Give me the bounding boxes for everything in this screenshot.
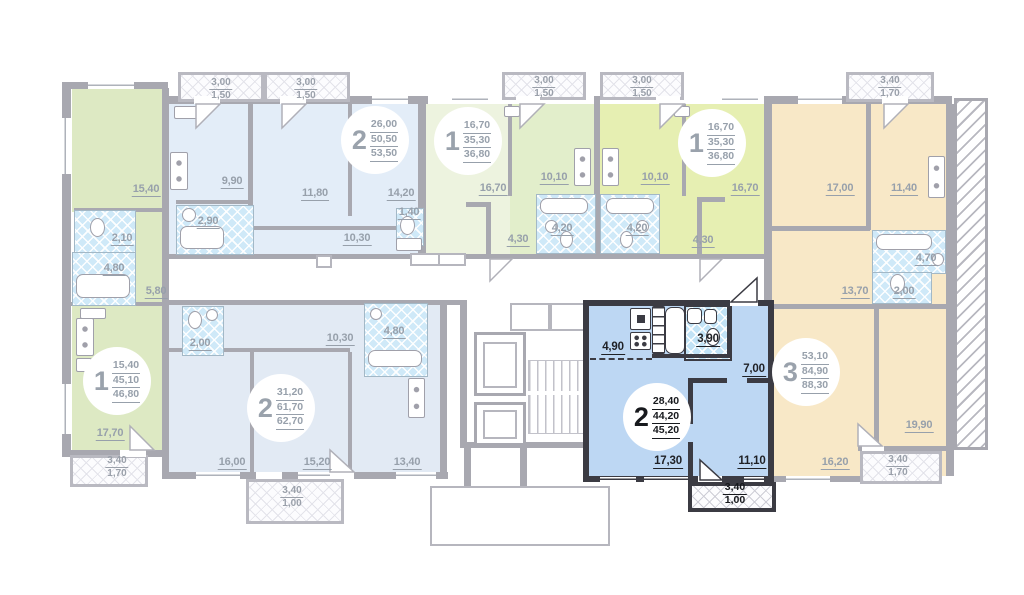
apartment-areas: 31,2061,7062,70 — [276, 386, 304, 430]
door-flaps — [0, 0, 1024, 595]
apartment-badge-middle-left-1-room[interactable]: 1 16,7035,3036,80 — [434, 107, 502, 175]
shape — [858, 424, 882, 446]
area-value: 84,90 — [801, 365, 829, 380]
area-value: 46,80 — [112, 388, 140, 403]
apartment-areas: 28,4044,2045,20 — [652, 395, 680, 439]
shape — [330, 450, 354, 472]
apartment-badge-selected-2-room[interactable]: 2 28,4044,2045,20 — [623, 383, 691, 451]
shape — [520, 104, 544, 128]
area-value: 53,50 — [370, 147, 398, 162]
shape — [196, 104, 220, 128]
area-value: 35,30 — [707, 136, 735, 151]
shape — [700, 259, 722, 281]
area-value: 88,30 — [801, 379, 829, 394]
apartment-badge-top-2-room[interactable]: 2 26,0050,5053,50 — [341, 106, 409, 174]
area-value: 61,70 — [276, 401, 304, 416]
apartment-rooms-count: 2 — [352, 127, 367, 154]
area-value: 36,80 — [707, 150, 735, 165]
shape — [731, 278, 757, 302]
apartment-badge-left-corner-1-room[interactable]: 1 15,4045,1046,80 — [83, 347, 151, 415]
area-value: 45,10 — [112, 374, 140, 389]
area-value: 36,80 — [463, 148, 491, 163]
shape — [884, 104, 908, 128]
area-value: 45,20 — [652, 424, 680, 439]
apartment-areas: 15,4045,1046,80 — [112, 359, 140, 403]
area-value: 16,70 — [707, 121, 735, 136]
apartment-rooms-count: 2 — [258, 395, 273, 422]
area-value: 31,20 — [276, 386, 304, 401]
apartment-rooms-count: 1 — [94, 368, 109, 395]
apartment-areas: 53,1084,9088,30 — [801, 350, 829, 394]
apartment-badge-middle-right-1-room[interactable]: 1 16,7035,3036,80 — [678, 109, 746, 177]
shape — [130, 426, 154, 450]
area-value: 28,40 — [652, 395, 680, 410]
shape — [700, 278, 757, 480]
area-value: 35,30 — [463, 134, 491, 149]
shape — [130, 104, 908, 472]
shape — [700, 460, 722, 480]
shape — [660, 104, 684, 128]
shape — [282, 104, 306, 128]
apartment-rooms-count: 2 — [634, 404, 649, 431]
shape — [490, 259, 512, 281]
apartment-rooms-count: 3 — [783, 359, 798, 386]
apartment-rooms-count: 1 — [445, 128, 460, 155]
floor-plan: 15,402,104,805,8017,70 1 15,4045,1046,80… — [0, 0, 1024, 595]
area-value: 50,50 — [370, 133, 398, 148]
apartment-rooms-count: 1 — [689, 130, 704, 157]
apartment-areas: 16,7035,3036,80 — [707, 121, 735, 165]
area-value: 16,70 — [463, 119, 491, 134]
apartment-badge-bottom-2-room[interactable]: 2 31,2061,7062,70 — [247, 374, 315, 442]
apartment-areas: 16,7035,3036,80 — [463, 119, 491, 163]
area-value: 62,70 — [276, 415, 304, 430]
apartment-badge-right-corner-3-room[interactable]: 3 53,1084,9088,30 — [772, 338, 840, 406]
area-value: 26,00 — [370, 118, 398, 133]
apartment-areas: 26,0050,5053,50 — [370, 118, 398, 162]
area-value: 53,10 — [801, 350, 829, 365]
area-value: 44,20 — [652, 410, 680, 425]
area-value: 15,40 — [112, 359, 140, 374]
